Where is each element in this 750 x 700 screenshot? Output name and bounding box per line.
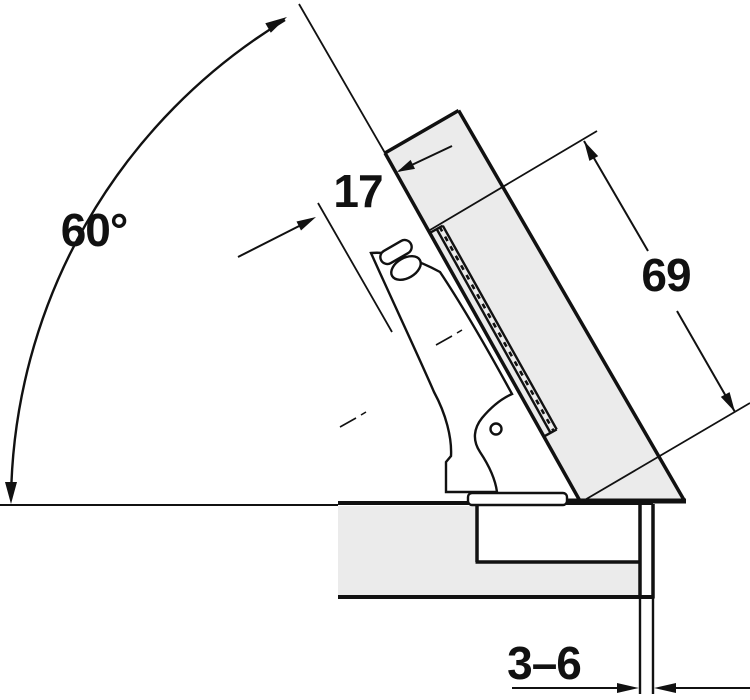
centerline-dot-1 (361, 412, 366, 415)
dim-gap-label: 3–6 (507, 637, 581, 689)
centerline-dash-1 (340, 418, 356, 427)
opening-angle-arc (11, 20, 285, 499)
cabinet-panel (338, 506, 640, 597)
dim-gap-arrowhead-right (654, 683, 676, 693)
drawing-canvas: 60° 17 69 3–6 (0, 0, 750, 700)
arc-arrowhead-bottom (5, 482, 17, 504)
hinge-installation-drawing: 60° 17 69 3–6 (0, 0, 750, 700)
dim-69-arrowhead-top (584, 141, 598, 161)
door-face-extension-line (299, 4, 385, 153)
screw-hole (491, 424, 502, 435)
dim-17-label: 17 (333, 165, 382, 217)
dim-69-arrowhead-bottom (721, 392, 735, 412)
hinge-mounting-plate (468, 493, 567, 505)
dim-gap-arrowhead-left (617, 683, 639, 693)
dim-17-arrowhead-left (297, 217, 317, 231)
opening-angle-label: 60° (61, 204, 128, 256)
dim-69-label: 69 (641, 249, 690, 301)
